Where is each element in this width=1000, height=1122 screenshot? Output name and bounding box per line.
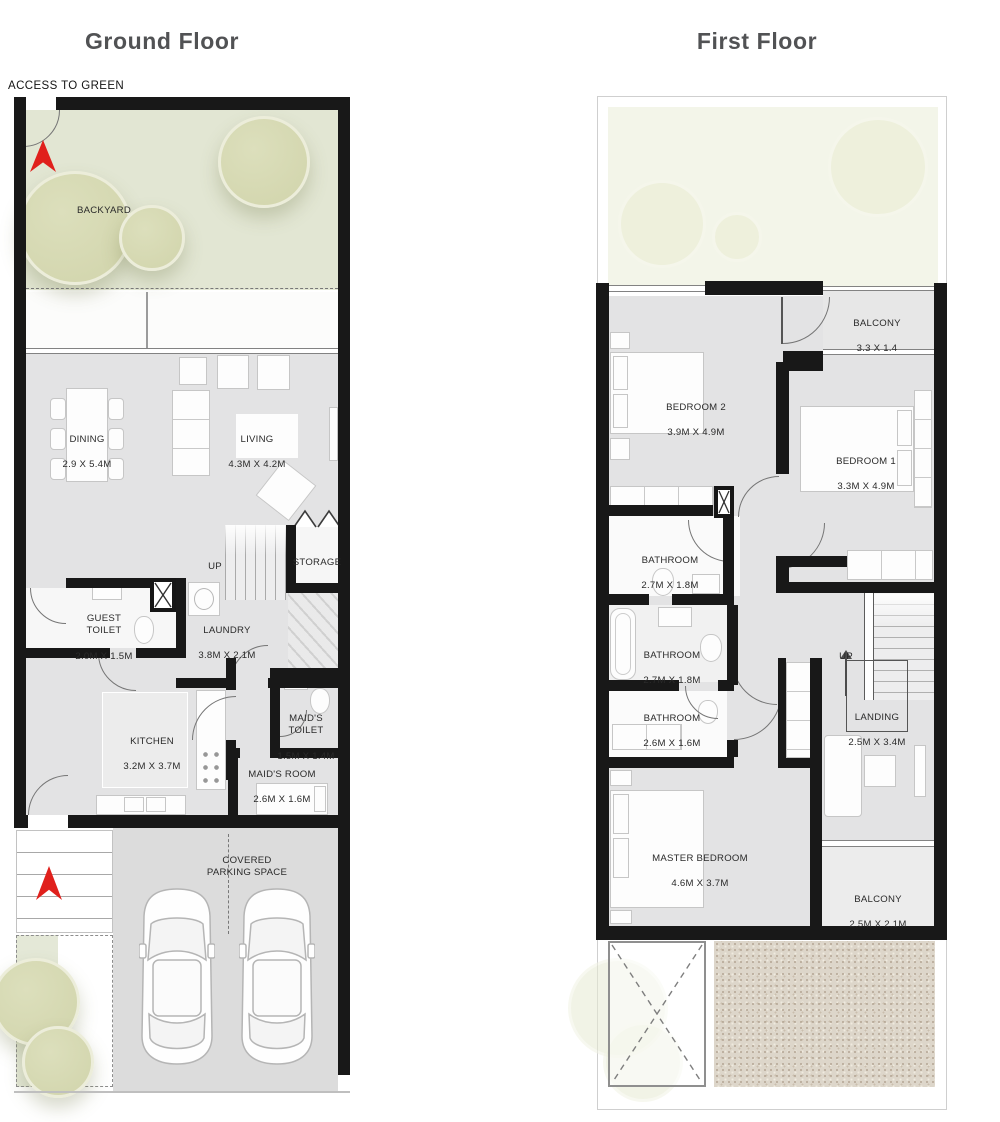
pillow xyxy=(613,794,629,834)
side-table xyxy=(864,755,896,787)
room-name: LANDING xyxy=(848,712,905,725)
wall-segment xyxy=(785,556,847,567)
wall-segment xyxy=(934,283,947,940)
wall-segment xyxy=(672,594,734,605)
room-label-balcony-bottom: BALCONY 2.5M X 2.1M xyxy=(849,881,906,932)
stove-icon xyxy=(200,748,222,788)
wall-segment xyxy=(718,680,734,691)
sink xyxy=(124,797,144,812)
room-name: KITCHEN xyxy=(123,736,180,749)
room-label-balcony-top: BALCONY 3.3 X 1.4 xyxy=(853,305,901,356)
room-label-bathroom-mid: BATHROOM 2.7M X 1.8M xyxy=(643,637,700,688)
up-label: UP xyxy=(208,561,222,574)
wall-segment xyxy=(596,283,609,940)
plot-edge-line xyxy=(14,1091,350,1093)
room-label-maids-room: MAID'S ROOM 2.6M X 1.6M xyxy=(248,756,315,807)
room-name: LIVING xyxy=(228,434,285,447)
pillow xyxy=(314,786,326,812)
room-dims: 2.7M X 1.8M xyxy=(643,675,700,688)
tree-icon xyxy=(618,180,706,268)
pillow xyxy=(613,838,629,878)
access-to-green-label: ACCESS TO GREEN xyxy=(8,80,124,92)
wall-segment xyxy=(56,97,350,110)
storage-door-icon xyxy=(292,507,342,529)
room-name: BATHROOM xyxy=(643,650,700,663)
nightstand xyxy=(610,910,632,924)
chair xyxy=(108,398,124,420)
nightstand xyxy=(610,438,630,460)
wall-segment xyxy=(68,815,350,828)
wall-segment xyxy=(226,748,240,758)
wall-segment xyxy=(609,594,649,605)
room-dims: 3.3 X 1.4 xyxy=(853,343,901,356)
closet-row xyxy=(847,550,933,580)
room-dims: 4.6M X 3.7M xyxy=(652,878,748,891)
window-band xyxy=(822,840,934,847)
pillow xyxy=(613,394,628,428)
room-dims: 3.8M X 2.1M xyxy=(198,650,255,663)
room-label-backyard: BACKYARD xyxy=(77,192,131,217)
room-name: DINING xyxy=(63,434,112,447)
room-label-landing: LANDING 2.5M X 3.4M xyxy=(848,699,905,750)
room-dims: 3.2M X 3.7M xyxy=(123,761,180,774)
room-label-bathroom-low: BATHROOM 2.6M X 1.6M xyxy=(643,700,700,751)
room-dims: 4.3M X 4.2M xyxy=(228,459,285,472)
toilet-fixture xyxy=(700,634,722,662)
window-band xyxy=(609,285,705,292)
room-dims: 3.3M X 4.9M xyxy=(836,481,896,494)
tree-icon xyxy=(218,116,310,208)
wall-segment xyxy=(14,97,26,828)
room-label-bedroom2: BEDROOM 2 3.9M X 4.9M xyxy=(666,389,726,440)
washing-machine xyxy=(188,582,220,616)
room-name: BALCONY xyxy=(849,894,906,907)
room-dims: 2.0M X 1.5M xyxy=(75,651,132,664)
room-label-bedroom1: BEDROOM 1 3.3M X 4.9M xyxy=(836,443,896,494)
stairs-up-label: UP xyxy=(208,548,222,573)
room-name: BALCONY xyxy=(853,318,901,331)
armchair xyxy=(217,355,249,389)
terrace-gravel-zone xyxy=(714,941,935,1087)
balcony-railing xyxy=(823,286,934,291)
room-label-parking: COVERED PARKING SPACE xyxy=(207,842,287,880)
car-icon xyxy=(139,886,215,1068)
staircase-fade xyxy=(225,525,286,555)
staircase-fade xyxy=(868,593,934,627)
wall-segment xyxy=(176,578,186,658)
nightstand xyxy=(610,332,630,349)
tree-icon xyxy=(18,171,132,285)
room-name: BACKYARD xyxy=(77,205,131,218)
wall-segment xyxy=(596,757,734,768)
x-mark-icon xyxy=(154,582,172,608)
wall-segment xyxy=(136,648,186,658)
room-name: GUEST TOILET xyxy=(75,613,132,638)
room-dims: 2.7M X 1.8M xyxy=(641,580,698,593)
boundary-dashed-line xyxy=(26,288,338,289)
stairs-up-label: UP xyxy=(839,638,853,663)
up-label: UP xyxy=(839,651,853,664)
room-label-kitchen: KITCHEN 3.2M X 3.7M xyxy=(123,723,180,774)
wall-segment xyxy=(776,362,789,474)
room-name: BEDROOM 2 xyxy=(666,402,726,415)
room-dims: 3.9M X 4.9M xyxy=(666,427,726,440)
wardrobe xyxy=(786,662,812,758)
pillow xyxy=(897,410,912,446)
shaft-box xyxy=(150,578,176,612)
pergola-cross-icon xyxy=(610,943,704,1085)
room-name: BATHROOM xyxy=(641,555,698,568)
room-name: MAID'S TOILET xyxy=(277,713,334,738)
sink xyxy=(92,586,122,600)
tv-unit xyxy=(329,407,338,461)
sofa xyxy=(172,390,210,476)
patio-zone xyxy=(26,292,338,348)
first-floor-title: First Floor xyxy=(697,28,817,55)
room-name: MAID'S ROOM xyxy=(248,769,315,782)
wall-segment xyxy=(785,582,934,593)
wall-segment xyxy=(778,658,786,765)
room-label-laundry: LAUNDRY 3.8M X 2.1M xyxy=(198,612,255,663)
room-name: STORAGE xyxy=(293,557,342,570)
wall-segment xyxy=(727,605,738,685)
wall-segment xyxy=(228,758,238,815)
room-name: BEDROOM 1 xyxy=(836,456,896,469)
bathtub xyxy=(610,608,636,680)
wall-segment xyxy=(727,740,738,757)
room-dims: 2.6M X 1.6M xyxy=(643,738,700,751)
room-label-maids-toilet: MAID'S TOILET 1.5M X 1.4M xyxy=(277,700,334,763)
sink xyxy=(658,607,692,627)
wall-segment xyxy=(810,658,822,940)
wall-segment xyxy=(609,505,713,516)
room-name: COVERED PARKING SPACE xyxy=(207,855,287,880)
room-name: LAUNDRY xyxy=(198,625,255,638)
wall-segment xyxy=(783,351,823,371)
pergola-box xyxy=(608,941,706,1087)
nightstand xyxy=(610,770,632,786)
sink xyxy=(146,797,166,812)
room-name: MASTER BEDROOM xyxy=(652,853,748,866)
window-band xyxy=(26,348,338,354)
wall-segment xyxy=(705,281,823,295)
shaft-box xyxy=(714,486,734,518)
tree-icon xyxy=(22,1026,94,1098)
wall-segment xyxy=(723,516,734,598)
wall-segment xyxy=(226,658,236,690)
wall-segment xyxy=(270,668,338,678)
tree-icon xyxy=(712,212,762,262)
wall-segment xyxy=(596,926,822,940)
ground-floor-title: Ground Floor xyxy=(85,28,239,55)
room-label-storage: STORAGE xyxy=(293,544,342,569)
room-dims: 2.5M X 3.4M xyxy=(848,737,905,750)
armchair xyxy=(179,357,207,385)
patio-divider xyxy=(146,292,148,348)
car-icon xyxy=(239,886,315,1068)
wall-segment xyxy=(66,578,150,588)
room-label-guest-toilet: GUEST TOILET 2.0M X 1.5M xyxy=(75,600,132,663)
room-name: BATHROOM xyxy=(643,713,700,726)
room-label-living: LIVING 4.3M X 4.2M xyxy=(228,421,285,472)
pillow xyxy=(613,356,628,390)
x-mark-icon xyxy=(718,490,730,514)
entrance-steps xyxy=(16,830,113,933)
wall-segment xyxy=(778,758,812,768)
armchair xyxy=(257,355,290,390)
tree-icon xyxy=(828,117,928,217)
room-dims: 2.5M X 2.1M xyxy=(849,919,906,932)
room-label-master-bedroom: MASTER BEDROOM 4.6M X 3.7M xyxy=(652,840,748,891)
understair-hatch xyxy=(288,593,338,678)
room-dims: 2.6M X 1.6M xyxy=(248,794,315,807)
wall-segment xyxy=(286,583,350,593)
room-dims: 2.9 X 5.4M xyxy=(63,459,112,472)
wardrobe xyxy=(914,390,932,508)
door-leaf xyxy=(781,297,783,344)
room-label-bathroom-top: BATHROOM 2.7M X 1.8M xyxy=(641,542,698,593)
floor-plan-canvas: Ground Floor ACCESS TO GREEN xyxy=(0,0,1000,1122)
wall-segment xyxy=(14,815,28,828)
chair xyxy=(50,398,66,420)
room-label-dining: DINING 2.9 X 5.4M xyxy=(63,421,112,472)
toilet-fixture xyxy=(134,616,154,644)
cushion xyxy=(914,745,926,797)
pillow xyxy=(897,450,912,486)
